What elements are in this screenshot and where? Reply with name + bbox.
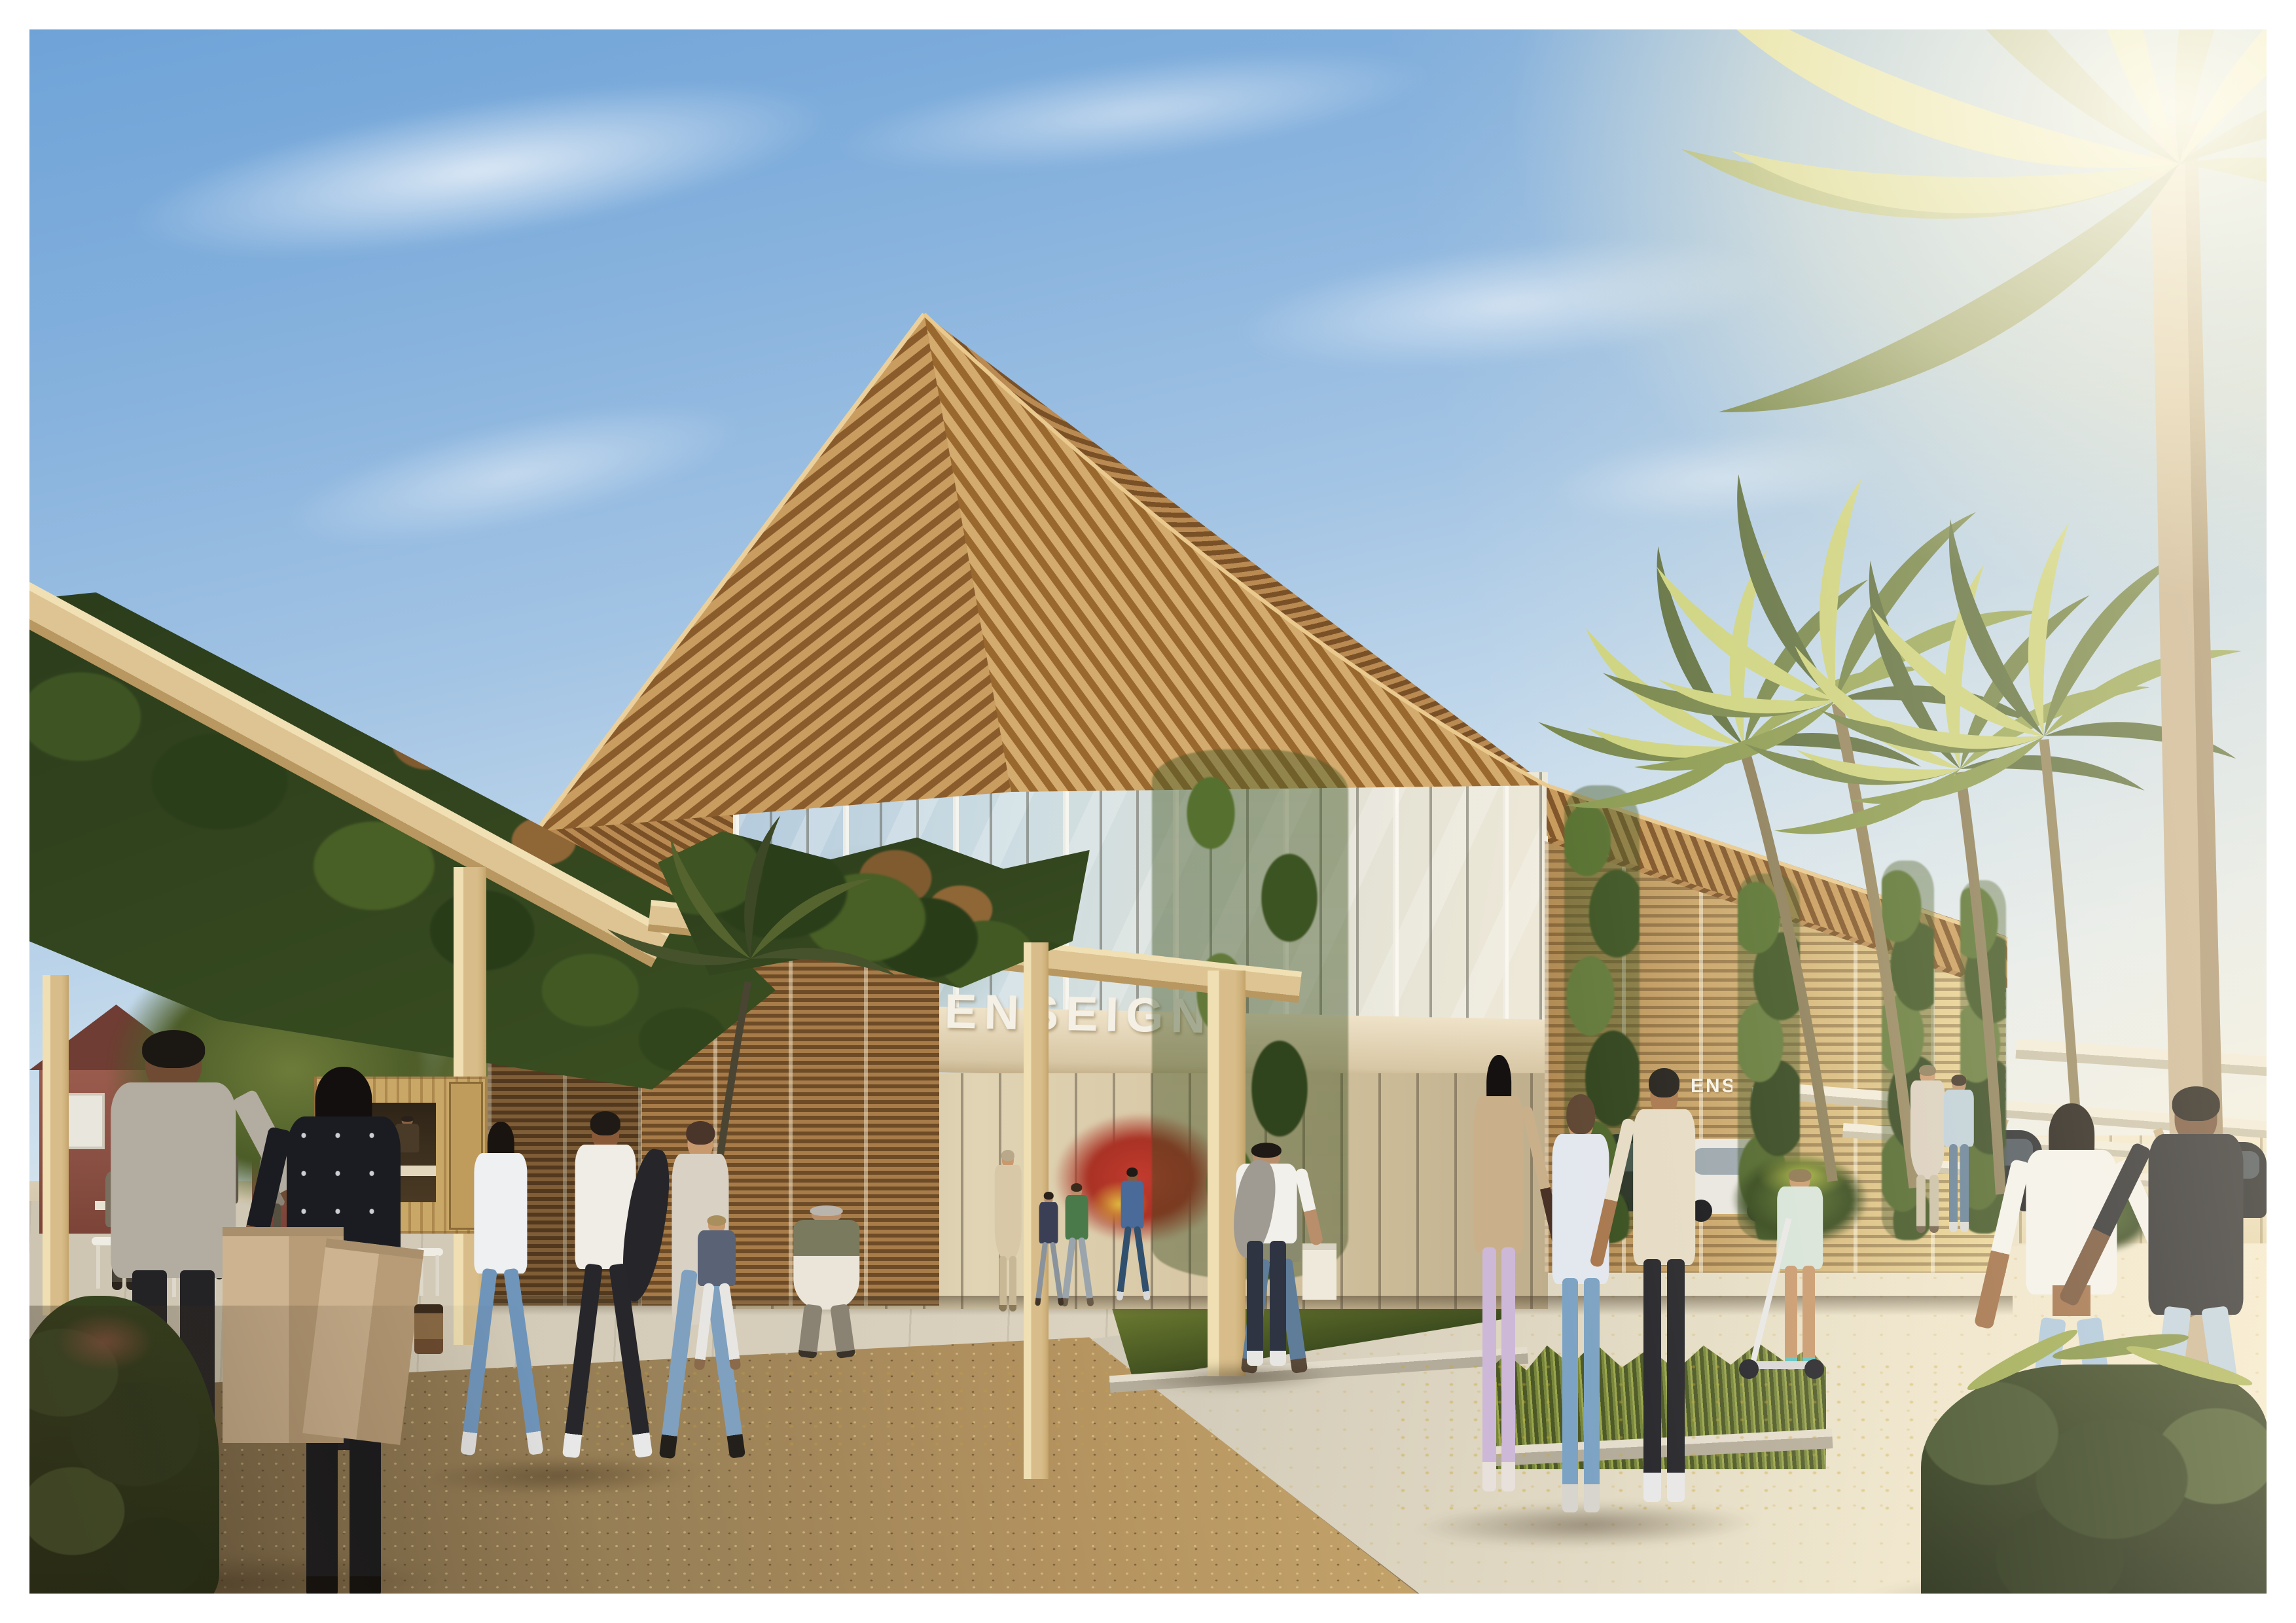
person-leg	[1078, 1237, 1094, 1306]
person-leg	[999, 1256, 1007, 1312]
person-leg	[1643, 1259, 1660, 1502]
person-hair	[1789, 1169, 1812, 1182]
pedestrian-man-white-shirt	[553, 1116, 658, 1482]
person-torso	[1039, 1202, 1058, 1243]
grass-tuft-red	[56, 1312, 154, 1371]
person-torso	[1633, 1109, 1696, 1265]
person-hair	[1071, 1183, 1082, 1192]
person-leg	[1785, 1266, 1797, 1370]
person-hair	[1044, 1192, 1054, 1200]
palm-trunk-slender	[1744, 749, 1833, 1181]
child-walking	[684, 1217, 749, 1381]
person-leg	[1949, 1144, 1958, 1232]
entrance-pedestrian	[985, 1152, 1031, 1322]
person-leg	[1562, 1278, 1578, 1512]
person-leg	[1009, 1256, 1016, 1312]
person-leg	[1247, 1241, 1264, 1366]
person-torso	[1944, 1090, 1974, 1147]
entrance-pedestrian-blue	[1113, 1169, 1152, 1310]
scooter-wheel	[1804, 1359, 1824, 1379]
person-leg	[1584, 1278, 1600, 1512]
person-torso	[698, 1230, 736, 1286]
person-hair	[1919, 1065, 1936, 1077]
person-hair	[142, 1030, 205, 1067]
person-hair	[2172, 1086, 2220, 1121]
person-leg	[503, 1268, 544, 1455]
person-torso	[1474, 1096, 1523, 1253]
person-hair	[708, 1215, 726, 1226]
person-leg	[1501, 1247, 1515, 1492]
person-leg	[1803, 1266, 1815, 1370]
person-hair	[1566, 1094, 1595, 1134]
man-beige-shirt	[1610, 1073, 1718, 1531]
person-leg	[306, 1429, 338, 1594]
person-leg	[562, 1263, 603, 1458]
entrance-child	[1032, 1193, 1065, 1314]
architectural-rendering-scene: ENSEIGNE ENSEIGNE ENSEIGNE ENSEIGNE	[29, 29, 2267, 1594]
person-leg	[719, 1283, 741, 1370]
person-hair	[1951, 1075, 1966, 1086]
person-hair	[1649, 1068, 1680, 1098]
scooter-wheel	[1739, 1359, 1759, 1379]
person-hair	[1001, 1150, 1014, 1161]
grandmother-walking	[769, 1207, 884, 1368]
person-hair	[590, 1111, 620, 1135]
person-leg	[1270, 1241, 1287, 1366]
person-torso	[474, 1153, 527, 1274]
person-leg	[1116, 1226, 1131, 1300]
person-torso	[1066, 1195, 1088, 1240]
person-leg	[1050, 1241, 1064, 1306]
person-leg	[694, 1283, 715, 1370]
pedestrian-woman-braids	[455, 1126, 547, 1479]
person-leg	[830, 1304, 855, 1359]
person-leg	[350, 1429, 381, 1594]
person-hair	[810, 1205, 843, 1216]
pedestrian-near-hedge	[1933, 1077, 1985, 1243]
person-hair	[686, 1121, 715, 1144]
person-torso	[111, 1082, 236, 1278]
person-leg	[798, 1304, 823, 1359]
person-leg	[1916, 1175, 1926, 1233]
person-leg	[1667, 1259, 1684, 1502]
woman-lilac-pants	[1456, 1060, 1541, 1522]
black-shirt	[2149, 1134, 2244, 1314]
person-leg	[1134, 1226, 1150, 1300]
person-leg	[461, 1268, 498, 1455]
coffee-cup	[414, 1304, 443, 1354]
person-leg	[1482, 1247, 1496, 1492]
person-leg	[1960, 1144, 1969, 1232]
rendering-frame: ENSEIGNE ENSEIGNE ENSEIGNE ENSEIGNE	[0, 0, 2296, 1623]
person-leg	[1035, 1241, 1048, 1306]
person-torso	[1121, 1181, 1144, 1228]
planting-bed-right-corner	[1921, 1364, 2267, 1594]
person-torso	[995, 1165, 1022, 1260]
person-torso	[793, 1220, 860, 1310]
person-hair	[1251, 1143, 1282, 1158]
standing-man-gravel	[1214, 1145, 1319, 1381]
person-hair	[1126, 1168, 1138, 1177]
